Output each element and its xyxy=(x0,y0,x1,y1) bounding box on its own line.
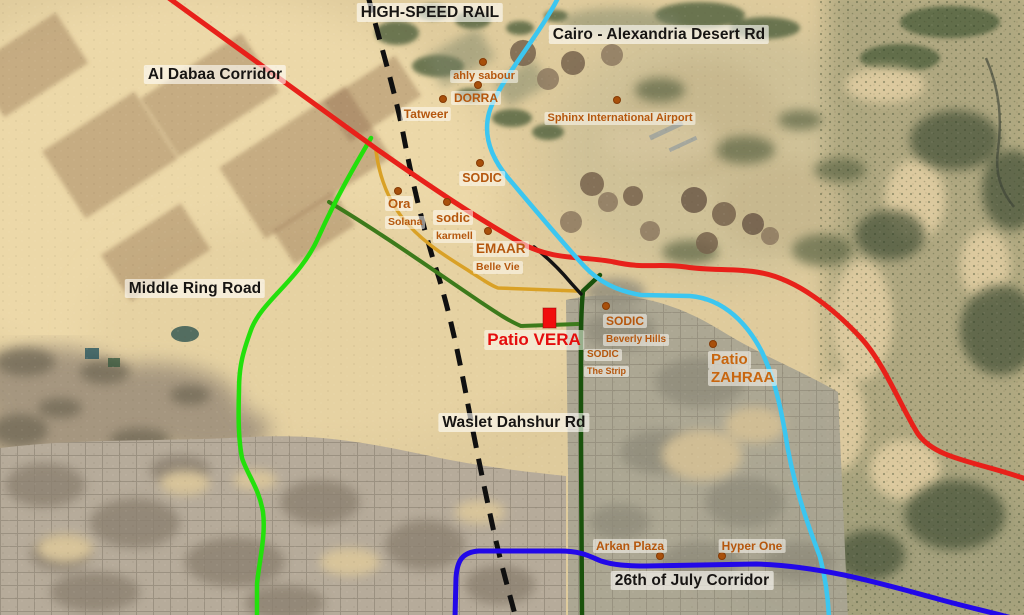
dorra-dot xyxy=(474,81,482,89)
place-label-tatweer: Tatweer xyxy=(401,105,451,122)
ora-solana-dot xyxy=(394,187,402,195)
sodic-karmell-dot xyxy=(443,198,451,206)
ahly-sabour-dot xyxy=(479,58,487,66)
emaar-belle-vie-text: Belle Vie xyxy=(473,261,523,273)
sodic-north-dot xyxy=(476,159,484,167)
place-label-dorra: DORRA xyxy=(451,89,501,106)
emaar-belle-vie-text: EMAAR xyxy=(473,241,529,257)
road-label-july-26: 26th of July Corridor xyxy=(611,571,774,590)
place-label-sodic-north: SODIC xyxy=(459,169,505,186)
ora-solana-text: Ora xyxy=(385,196,413,211)
place-label-patio-vera: Patio VERA xyxy=(484,330,584,350)
place-label-sodic-the-strip: SODICThe Strip xyxy=(584,344,629,379)
road-label-high-speed-rail: HIGH-SPEED RAIL xyxy=(357,3,503,22)
label-layer: HIGH-SPEED RAILCairo - Alexandria Desert… xyxy=(0,0,1024,615)
place-label-ahly-sabour: ahly sabour xyxy=(450,66,518,83)
patio-zahraa-text: Patio xyxy=(708,351,751,369)
tatweer-dot xyxy=(439,95,447,103)
patio-vera-text: Patio VERA xyxy=(484,330,584,350)
arkan-plaza-text: Arkan Plaza xyxy=(593,539,667,553)
road-label-middle-ring: Middle Ring Road xyxy=(125,279,265,298)
ora-solana-text: Solana xyxy=(385,216,425,228)
road-label-al-dabaa: Al Dabaa Corridor xyxy=(144,65,286,84)
place-label-ora-solana: OraSolana xyxy=(385,195,425,230)
sphinx-airport-dot xyxy=(613,96,621,104)
place-label-arkan-plaza: Arkan Plaza xyxy=(593,537,667,554)
patio-zahraa-dot xyxy=(709,340,717,348)
sodic-karmell-text: karmell xyxy=(433,230,476,242)
sodic-the-strip-text: SODIC xyxy=(584,349,622,361)
sodic-north-text: SODIC xyxy=(459,171,505,186)
place-label-emaar-belle-vie: EMAARBelle Vie xyxy=(473,240,529,275)
emaar-belle-vie-dot xyxy=(484,227,492,235)
place-label-sodic-karmell: sodickarmell xyxy=(433,209,476,244)
sodic-karmell-text: sodic xyxy=(433,210,473,225)
sodic-beverly-hills-dot xyxy=(602,302,610,310)
satellite-map: HIGH-SPEED RAILCairo - Alexandria Desert… xyxy=(0,0,1024,615)
place-label-patio-zahraa: PatioZAHRAA xyxy=(708,351,777,386)
place-label-sodic-beverly-hills: SODICBeverly Hills xyxy=(603,312,669,347)
ahly-sabour-text: ahly sabour xyxy=(450,70,518,83)
dorra-text: DORRA xyxy=(451,91,501,105)
road-label-cairo-alexandria: Cairo - Alexandria Desert Rd xyxy=(549,25,769,44)
sodic-the-strip-text: The Strip xyxy=(584,366,629,377)
place-label-sphinx-airport: Sphinx International Airport xyxy=(544,108,695,125)
road-label-waslet-dahshur: Waslet Dahshur Rd xyxy=(438,413,589,432)
sphinx-airport-text: Sphinx International Airport xyxy=(544,112,695,125)
hyper-one-text: Hyper One xyxy=(719,539,786,553)
sodic-beverly-hills-text: SODIC xyxy=(603,314,647,328)
patio-zahraa-text: ZAHRAA xyxy=(708,369,777,387)
place-label-hyper-one: Hyper One xyxy=(719,537,786,554)
tatweer-text: Tatweer xyxy=(401,107,451,121)
